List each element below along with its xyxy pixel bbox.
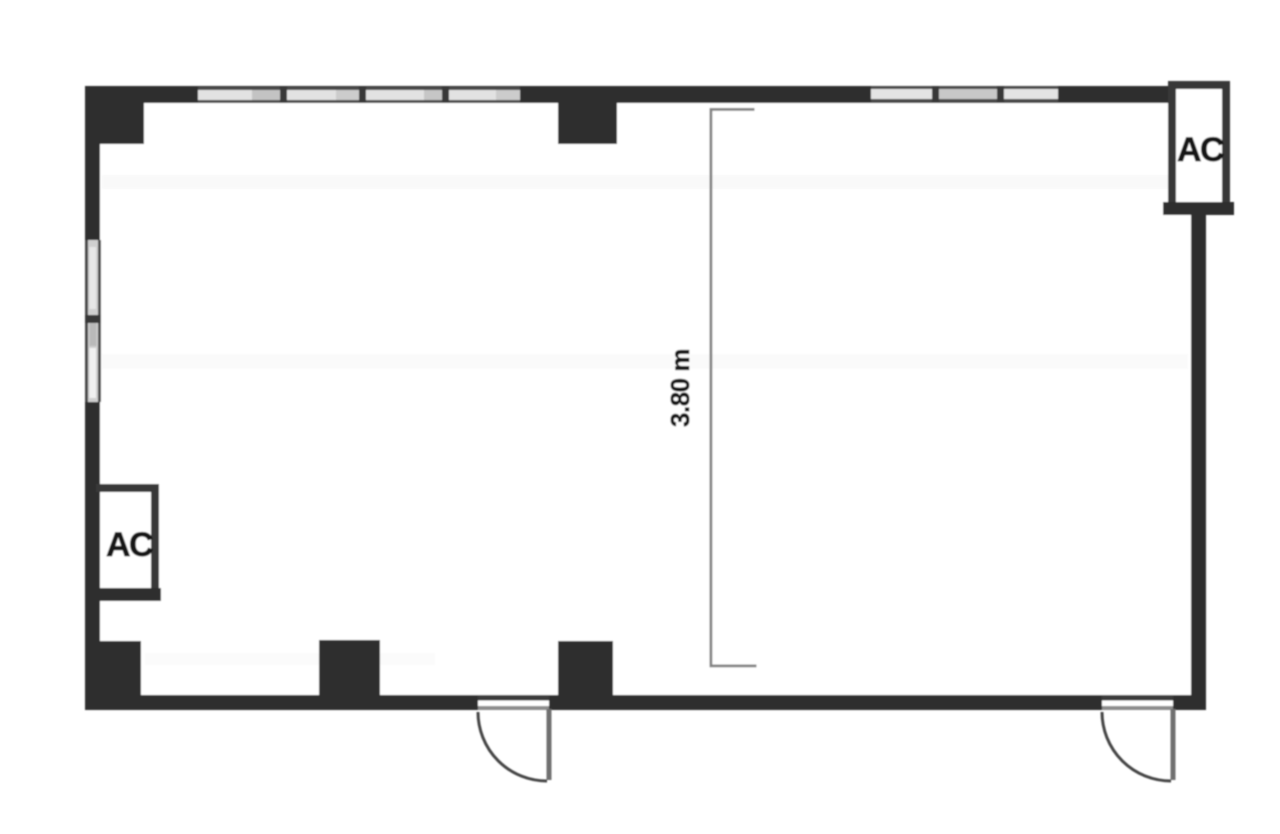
svg-text:AC: AC — [106, 526, 153, 564]
svg-text:3.80 m: 3.80 m — [665, 349, 695, 427]
svg-text:AC: AC — [1177, 131, 1224, 169]
